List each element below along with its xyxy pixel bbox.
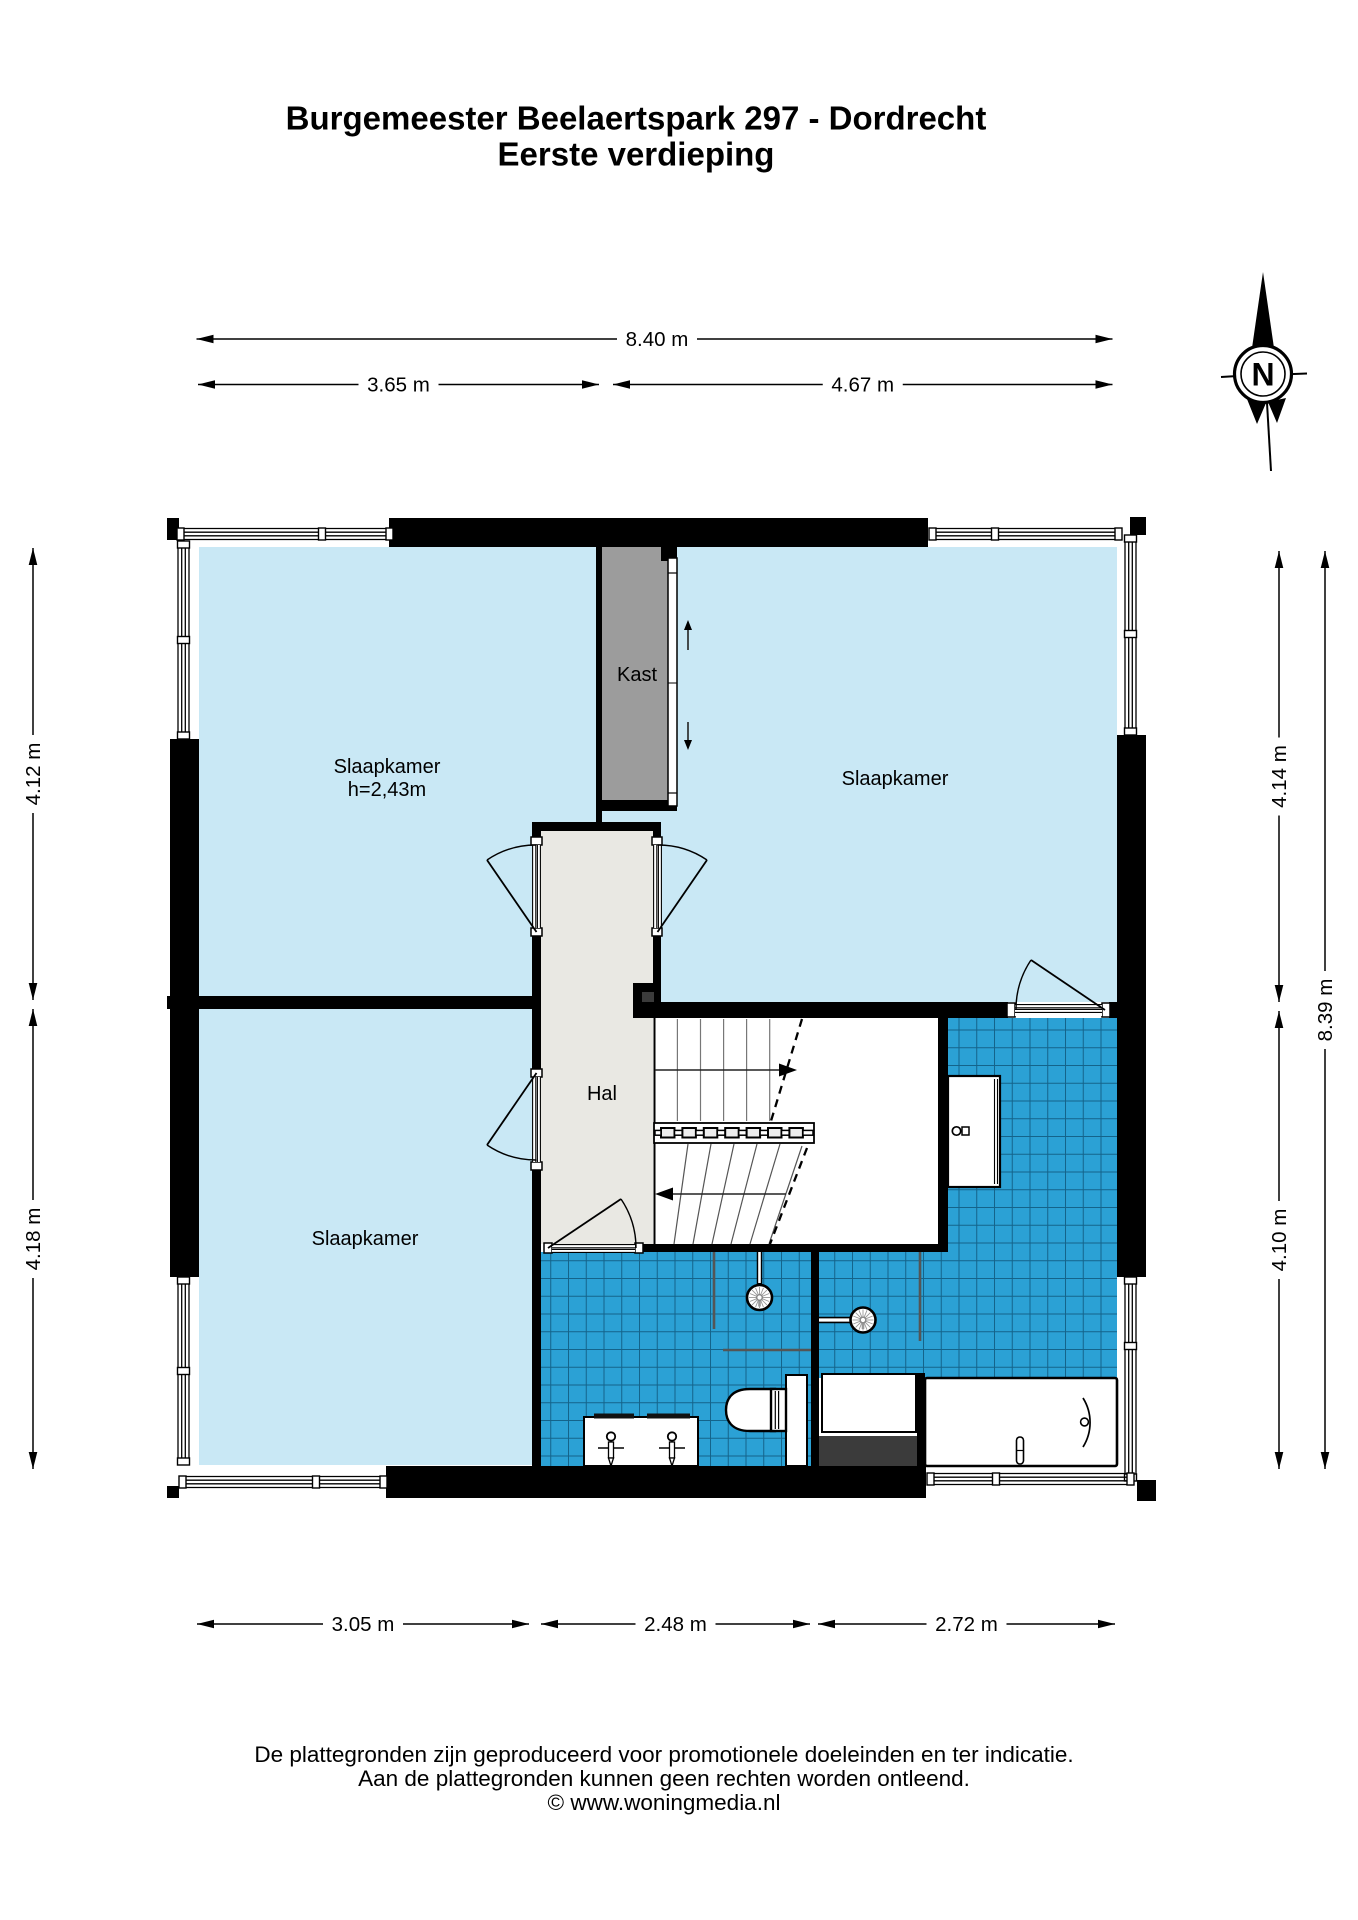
svg-text:Burgemeester Beelaertspark 297: Burgemeester Beelaertspark 297 - Dordrec…: [286, 100, 987, 137]
svg-text:De plattegronden zijn geproduc: De plattegronden zijn geproduceerd voor …: [254, 1742, 1073, 1767]
svg-text:Eerste verdieping: Eerste verdieping: [498, 136, 775, 173]
svg-text:8.39 m: 8.39 m: [1314, 979, 1337, 1042]
svg-text:8.40 m: 8.40 m: [626, 328, 689, 351]
svg-text:4.67 m: 4.67 m: [831, 374, 894, 397]
svg-text:Slaapkamer: Slaapkamer: [334, 756, 441, 778]
svg-text:2.48 m: 2.48 m: [644, 1613, 707, 1636]
svg-text:4.14 m: 4.14 m: [1268, 745, 1291, 808]
svg-text:N: N: [1251, 357, 1274, 393]
svg-text:Hal: Hal: [587, 1083, 617, 1105]
svg-text:4.10 m: 4.10 m: [1268, 1209, 1291, 1272]
svg-text:h=2,43m: h=2,43m: [348, 779, 426, 801]
svg-text:4.18 m: 4.18 m: [22, 1208, 45, 1271]
svg-text:2.72 m: 2.72 m: [935, 1613, 998, 1636]
svg-text:3.05 m: 3.05 m: [332, 1613, 395, 1636]
svg-text:© www.woningmedia.nl: © www.woningmedia.nl: [548, 1790, 781, 1815]
svg-text:Kast: Kast: [617, 664, 657, 686]
svg-text:Slaapkamer: Slaapkamer: [312, 1228, 419, 1250]
svg-text:4.12 m: 4.12 m: [22, 743, 45, 806]
svg-text:Aan de plattegronden kunnen ge: Aan de plattegronden kunnen geen rechten…: [358, 1766, 970, 1791]
svg-text:3.65 m: 3.65 m: [367, 374, 430, 397]
svg-text:Slaapkamer: Slaapkamer: [842, 768, 949, 790]
